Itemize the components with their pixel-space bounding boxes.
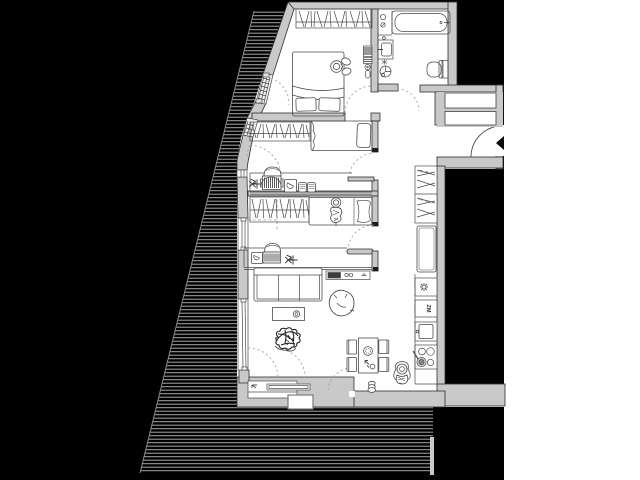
svg-text:ZM: ZM xyxy=(425,305,431,313)
